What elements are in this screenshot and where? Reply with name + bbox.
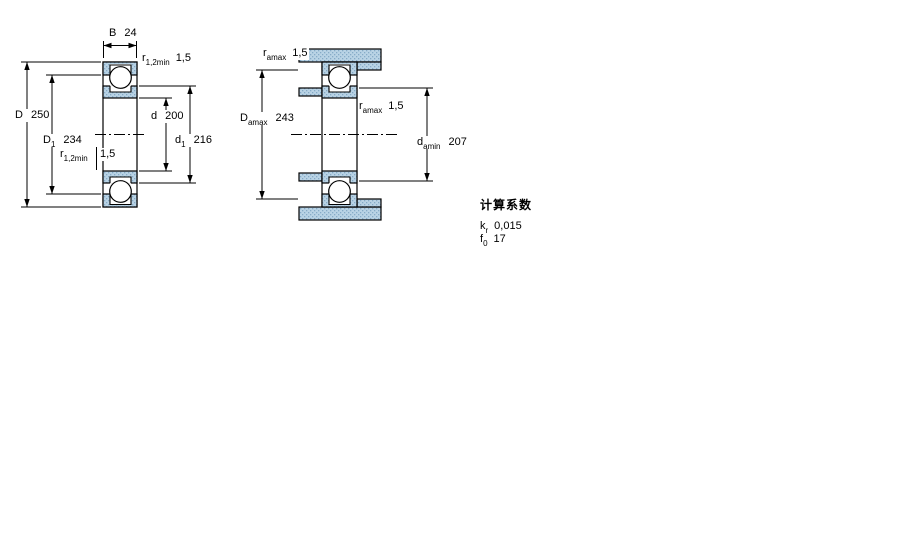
dim-value: 243 <box>276 112 294 124</box>
housing-shoulder-top <box>357 62 381 70</box>
dim-label-damin: damin207 <box>416 136 468 149</box>
factor-f0: f017 <box>479 233 507 246</box>
ball-top <box>329 67 351 89</box>
dim-label-d1: d1216 <box>174 134 213 147</box>
calculation-factors-title: 计算系数 <box>479 199 533 212</box>
shaft-shoulder-bottom <box>299 173 322 181</box>
factor-symbol: k <box>480 220 486 232</box>
dim-value: 216 <box>194 134 212 146</box>
dim-label-width-B: B24 <box>108 27 138 40</box>
factor-kr: kr0,015 <box>479 220 523 233</box>
dim-label-ramax-top: ramax1,5 <box>262 47 309 60</box>
housing-shoulder-bottom <box>357 199 381 207</box>
dim-symbol: D <box>240 112 248 124</box>
dim-value: 1,5 <box>100 148 115 160</box>
dim-value: 200 <box>165 110 183 122</box>
ball-bottom <box>329 181 351 203</box>
bearing-drawing-page: B24 r1,2min1,5 D250 D1234 d200 d1216 r1,… <box>0 0 900 560</box>
right-figure-abutments <box>256 49 433 220</box>
dim-label-r12min-mid-value: 1,5 <box>99 148 116 161</box>
dim-subscript: amin <box>423 142 440 151</box>
dim-subscript: amax <box>248 118 268 127</box>
dim-subscript: amax <box>363 106 383 115</box>
dim-value: 1,5 <box>176 52 191 64</box>
housing-section-bottom <box>299 207 381 220</box>
technical-drawing <box>0 0 900 560</box>
factor-value: 17 <box>494 233 506 245</box>
dim-symbol: D <box>15 109 23 121</box>
dim-value: 207 <box>448 136 466 148</box>
dim-subscript: 1 <box>51 140 55 149</box>
dim-value: 250 <box>31 109 49 121</box>
housing-section-top <box>299 49 381 62</box>
dim-label-bore-d: d200 <box>150 110 184 123</box>
dim-label-r12min-mid-symbol: r1,2min <box>59 148 89 161</box>
dim-label-ramax-mid: ramax1,5 <box>358 100 405 113</box>
factor-subscript: 0 <box>483 239 487 248</box>
dim-symbol: D <box>43 134 51 146</box>
dim-label-outer-diameter-D: D250 <box>14 109 50 122</box>
ball-bottom <box>110 181 132 203</box>
dim-subscript: 1,2min <box>64 154 88 163</box>
dim-subscript: 1 <box>181 140 185 149</box>
dim-label-r12min-top: r1,2min1,5 <box>141 52 192 65</box>
dim-label-Damax: Damax243 <box>239 112 295 125</box>
dim-symbol: d <box>151 110 157 122</box>
dim-value: 1,5 <box>292 47 307 59</box>
dim-value: 1,5 <box>388 100 403 112</box>
dim-symbol: B <box>109 27 116 39</box>
dim-subscript: amax <box>267 53 287 62</box>
shaft-shoulder-top <box>299 88 322 96</box>
dim-value: 234 <box>63 134 81 146</box>
dim-subscript: 1,2min <box>146 58 170 67</box>
ball-top <box>110 67 132 89</box>
factor-value: 0,015 <box>494 220 522 232</box>
dim-label-D1: D1234 <box>42 134 83 147</box>
dim-value: 24 <box>124 27 136 39</box>
dim-B <box>104 41 137 58</box>
